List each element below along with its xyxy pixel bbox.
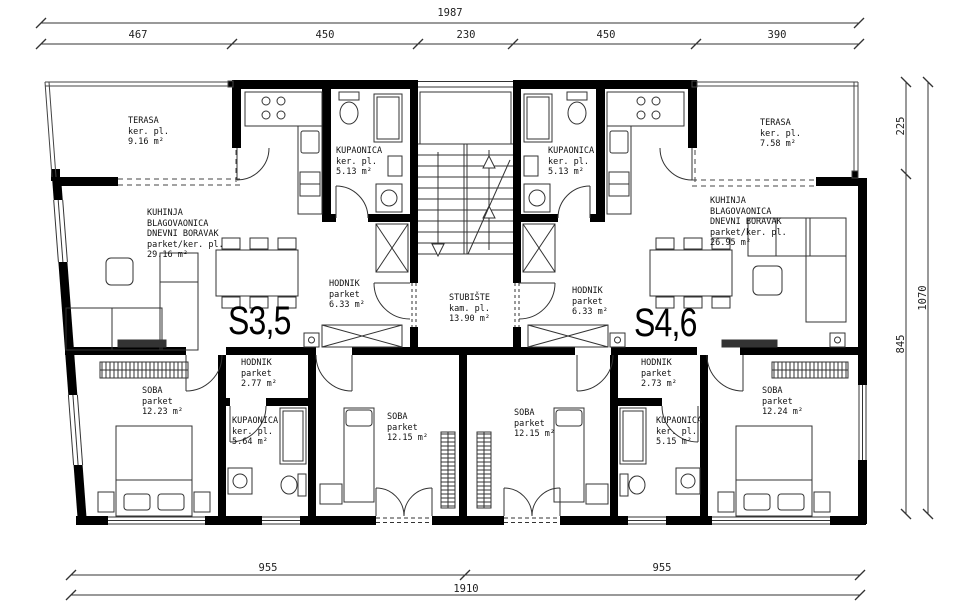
room-label-hodnik-upper-right: HODNIK parket 6.33 m² [572,286,608,318]
room-floor: ker. pl. [548,157,594,168]
dim-top-seg-4: 450 [584,29,628,41]
room-floor: parket [762,397,803,408]
room-area: 12.24 m² [762,407,803,418]
room-label-kupaonica-lower-left: KUPAONICA ker. pl. 5.64 m² [232,416,278,448]
room-name: TERASA [760,118,801,129]
room-name: HODNIK [241,358,277,369]
room-name: SOBA [142,386,183,397]
dim-top-seg-1: 467 [116,29,160,41]
room-name: TERASA [128,116,169,127]
room-area: 12.15 m² [387,433,428,444]
room-floor: parket [514,419,555,430]
room-name: KUPAONICA [232,416,278,427]
room-name: HODNIK [329,279,365,290]
dim-right-seg-2: 845 [895,322,907,366]
room-floor: parket [142,397,183,408]
room-label-kuhinja-right: KUHINJA BLAGOVAONICA DNEVNI BORAVAK park… [710,196,787,249]
room-name: HODNIK [641,358,677,369]
room-floor: ker. pl. [336,157,382,168]
room-name-2: BLAGOVAONICA [147,219,224,230]
dim-bottom-seg-1: 955 [246,562,290,574]
room-floor: ker. pl. [760,129,801,140]
room-label-kupaonica-lower-right: KUPAONICA ker. pl. 5.15 m² [656,416,702,448]
dim-right-total: 1070 [917,276,929,320]
room-name: KUHINJA [147,208,224,219]
room-label-soba-mid-right: SOBA parket 12.15 m² [514,408,555,440]
room-name: KUHINJA [710,196,787,207]
room-floor: parket [241,369,277,380]
room-floor: kam. pl. [449,304,490,315]
room-area: 26.95 m² [710,238,787,249]
room-floor: ker. pl. [232,427,278,438]
apartment-label-right: S4,6 [634,304,697,342]
room-name: SOBA [762,386,803,397]
dim-top-seg-5: 390 [755,29,799,41]
room-label-soba-mid-left: SOBA parket 12.15 m² [387,412,428,444]
room-floor: parket [387,423,428,434]
room-label-soba-left: SOBA parket 12.23 m² [142,386,183,418]
room-label-hodnik-lower-left: HODNIK parket 2.77 m² [241,358,277,390]
room-name: SOBA [514,408,555,419]
room-floor: parket [329,290,365,301]
room-label-kupaonica-top-left: KUPAONICA ker. pl. 5.13 m² [336,146,382,178]
room-name: KUPAONICA [656,416,702,427]
room-name: SOBA [387,412,428,423]
room-name-3: DNEVNI BORAVAK [710,217,787,228]
room-area: 9.16 m² [128,137,169,148]
dim-top-seg-3: 230 [444,29,488,41]
room-label-stubiste: STUBIŠTE kam. pl. 13.90 m² [449,293,490,325]
room-label-soba-right: SOBA parket 12.24 m² [762,386,803,418]
dim-top-total: 1987 [428,7,472,19]
room-floor: parket [641,369,677,380]
room-label-kuhinja-left: KUHINJA BLAGOVAONICA DNEVNI BORAVAK park… [147,208,224,261]
room-area: 12.23 m² [142,407,183,418]
room-name-2: BLAGOVAONICA [710,207,787,218]
room-label-terasa-right: TERASA ker. pl. 7.58 m² [760,118,801,150]
dim-right-seg-1: 225 [895,104,907,148]
room-area: 6.33 m² [572,307,608,318]
room-name: HODNIK [572,286,608,297]
room-label-hodnik-upper-left: HODNIK parket 6.33 m² [329,279,365,311]
room-area: 6.33 m² [329,300,365,311]
room-label-terasa-left: TERASA ker. pl. 9.16 m² [128,116,169,148]
room-area: 5.15 m² [656,437,702,448]
room-name: KUPAONICA [548,146,594,157]
room-label-kupaonica-top-right: KUPAONICA ker. pl. 5.13 m² [548,146,594,178]
room-area: 7.58 m² [760,139,801,150]
room-area: 5.13 m² [548,167,594,178]
room-floor: ker. pl. [656,427,702,438]
dim-bottom-seg-2: 955 [640,562,684,574]
dim-bottom-total: 1910 [444,583,488,595]
apartment-label-left: S3,5 [228,302,291,340]
room-area: 29.16 m² [147,250,224,261]
room-floor: ker. pl. [128,127,169,138]
room-area: 5.64 m² [232,437,278,448]
room-area: 2.77 m² [241,379,277,390]
room-area: 5.13 m² [336,167,382,178]
room-name: STUBIŠTE [449,293,490,304]
staircase [412,92,519,327]
room-floor: parket [572,297,608,308]
room-area: 13.90 m² [449,314,490,325]
dim-top-seg-2: 450 [303,29,347,41]
room-label-hodnik-lower-right: HODNIK parket 2.73 m² [641,358,677,390]
floor-plan-page: 1987 467 450 230 450 390 225 845 1070 95… [0,0,960,614]
room-area: 2.73 m² [641,379,677,390]
room-name-3: DNEVNI BORAVAK [147,229,224,240]
room-area: 12.15 m² [514,429,555,440]
room-floor: parket/ker. pl. [710,228,787,239]
room-floor: parket/ker. pl. [147,240,224,251]
room-name: KUPAONICA [336,146,382,157]
